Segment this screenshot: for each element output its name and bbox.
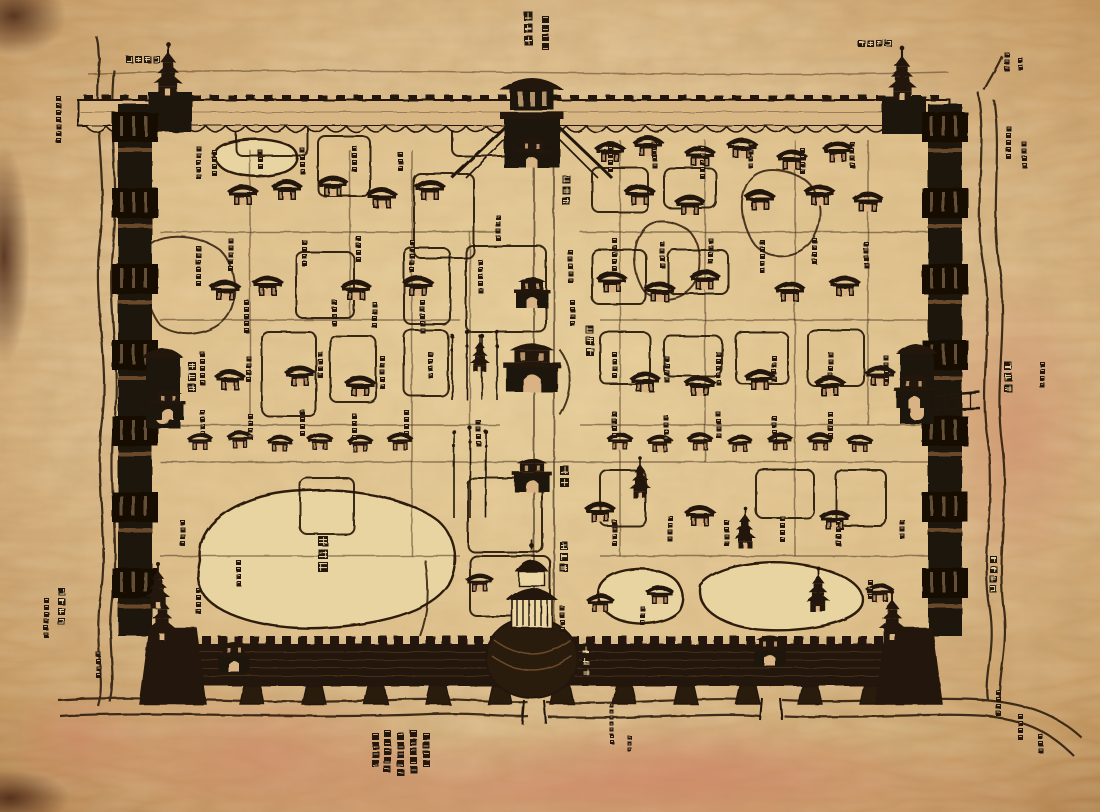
- illegible-glyph: [608, 153, 613, 158]
- illegible-glyph: [812, 245, 817, 250]
- illegible-glyph: [404, 417, 409, 422]
- illegible-glyph: [716, 380, 721, 385]
- illegible-glyph: [884, 356, 889, 361]
- illegible-glyph: [300, 410, 305, 415]
- illegible-glyph: [612, 433, 617, 438]
- north-gate-label: [524, 12, 533, 45]
- illegible-glyph: [1022, 149, 1027, 154]
- illegible-glyph: [372, 742, 379, 749]
- central-hill-label: [586, 326, 594, 356]
- illegible-glyph: [760, 268, 765, 273]
- illegible-glyph: [608, 167, 613, 172]
- illegible-glyph: [864, 249, 869, 254]
- illegible-glyph: [496, 215, 501, 220]
- illegible-glyph: [248, 428, 253, 433]
- illegible-glyph: [996, 711, 1001, 716]
- illegible-glyph: [884, 370, 889, 375]
- illegible-glyph: [56, 117, 61, 122]
- illegible-glyph: [700, 160, 705, 165]
- illegible-glyph: [332, 300, 337, 305]
- illegible-glyph: [996, 690, 1001, 695]
- illegible-glyph: [772, 363, 777, 368]
- illegible-glyph: [716, 419, 721, 424]
- illegible-glyph: [380, 370, 385, 375]
- west-lake-label: [318, 536, 328, 572]
- illegible-glyph: [608, 160, 613, 165]
- illegible-glyph: [760, 247, 765, 252]
- illegible-glyph: [568, 264, 573, 269]
- illegible-glyph: [664, 377, 669, 382]
- illegible-glyph: [660, 256, 665, 261]
- illegible-glyph: [476, 427, 481, 432]
- illegible-glyph: [724, 534, 729, 539]
- illegible-glyph: [760, 240, 765, 245]
- illegible-glyph: [772, 416, 777, 421]
- illegible-glyph: [258, 157, 263, 162]
- illegible-glyph: [612, 412, 617, 417]
- illegible-glyph: [244, 321, 249, 326]
- illegible-glyph: [812, 259, 817, 264]
- illegible-glyph: [478, 260, 483, 265]
- illegible-glyph: [302, 261, 307, 266]
- illegible-glyph: [302, 247, 307, 252]
- illegible-glyph: [200, 352, 205, 357]
- illegible-glyph: [664, 423, 669, 428]
- illegible-glyph: [748, 163, 753, 168]
- illegible-glyph: [258, 164, 263, 169]
- illegible-glyph: [612, 534, 617, 539]
- illegible-glyph: [228, 252, 233, 257]
- illegible-glyph: [180, 527, 185, 532]
- illegible-glyph: [828, 359, 833, 364]
- illegible-glyph: [660, 263, 665, 268]
- illegible-glyph: [332, 307, 337, 312]
- illegible-glyph: [356, 243, 361, 248]
- illegible-glyph: [496, 229, 501, 234]
- illegible-glyph: [372, 323, 377, 328]
- illegible-glyph: [1040, 362, 1045, 367]
- illegible-glyph: [640, 620, 645, 625]
- illegible-glyph: [244, 314, 249, 319]
- illegible-glyph: [248, 414, 253, 419]
- illegible-glyph: [196, 274, 201, 279]
- illegible-glyph: [44, 612, 49, 617]
- illegible-glyph: [772, 437, 777, 442]
- illegible-glyph: [318, 373, 323, 378]
- illegible-glyph: [812, 238, 817, 243]
- illegible-glyph: [668, 530, 673, 535]
- illegible-glyph: [716, 412, 721, 417]
- illegible-glyph: [828, 352, 833, 357]
- illegible-glyph: [748, 142, 753, 147]
- illegible-glyph: [356, 236, 361, 241]
- illegible-glyph: [868, 580, 873, 585]
- illegible-glyph: [1018, 58, 1023, 63]
- illegible-glyph: [748, 156, 753, 161]
- south-axis-gate-label: [560, 542, 568, 572]
- illegible-glyph: [772, 430, 777, 435]
- illegible-glyph: [612, 359, 617, 364]
- illegible-glyph: [56, 124, 61, 129]
- illegible-glyph: [612, 352, 617, 357]
- illegible-glyph: [352, 146, 357, 151]
- illegible-glyph: [196, 609, 201, 614]
- illegible-glyph: [612, 252, 617, 257]
- illegible-glyph: [384, 748, 391, 755]
- illegible-glyph: [716, 366, 721, 371]
- illegible-glyph: [300, 417, 305, 422]
- illegible-glyph: [56, 131, 61, 136]
- illegible-glyph: [200, 424, 205, 429]
- illegible-glyph: [1040, 383, 1045, 388]
- illegible-glyph: [652, 156, 657, 161]
- illegible-glyph: [724, 541, 729, 546]
- illegible-glyph: [200, 431, 205, 436]
- illegible-glyph: [760, 254, 765, 259]
- illegible-glyph: [180, 541, 185, 546]
- illegible-glyph: [200, 359, 205, 364]
- illegible-glyph: [1006, 140, 1011, 145]
- illegible-glyph: [1004, 59, 1009, 64]
- illegible-glyph: [828, 412, 833, 417]
- illegible-glyph: [612, 259, 617, 264]
- illegible-glyph: [864, 256, 869, 261]
- illegible-glyph: [180, 534, 185, 539]
- illegible-glyph: [864, 242, 869, 247]
- illegible-glyph: [1004, 52, 1009, 57]
- illegible-glyph: [668, 537, 673, 542]
- illegible-glyph: [236, 574, 241, 579]
- illegible-glyph: [560, 613, 565, 618]
- illegible-glyph: [410, 261, 415, 266]
- illegible-glyph: [318, 359, 323, 364]
- illegible-glyph: [302, 240, 307, 245]
- illegible-glyph: [708, 245, 713, 250]
- illegible-glyph: [404, 424, 409, 429]
- illegible-glyph: [780, 516, 785, 521]
- illegible-glyph: [244, 307, 249, 312]
- illegible-glyph: [196, 153, 201, 158]
- illegible-glyph: [200, 373, 205, 378]
- illegible-glyph: [397, 742, 404, 749]
- illegible-glyph: [300, 148, 305, 153]
- illegible-glyph: [800, 169, 805, 174]
- illegible-glyph: [423, 742, 430, 749]
- illegible-glyph: [664, 437, 669, 442]
- illegible-glyph: [772, 370, 777, 375]
- illegible-glyph: [96, 666, 101, 671]
- illegible-glyph: [668, 516, 673, 521]
- illegible-glyph: [236, 560, 241, 565]
- illegible-glyph: [398, 166, 403, 171]
- illegible-glyph: [300, 162, 305, 167]
- illegible-glyph: [652, 149, 657, 154]
- illegible-glyph: [850, 149, 855, 154]
- illegible-glyph: [200, 380, 205, 385]
- illegible-glyph: [612, 238, 617, 243]
- illegible-glyph: [716, 433, 721, 438]
- illegible-glyph: [1006, 133, 1011, 138]
- illegible-glyph: [332, 321, 337, 326]
- illegible-glyph: [244, 300, 249, 305]
- illegible-glyph: [212, 157, 217, 162]
- illegible-glyph: [196, 267, 201, 272]
- illegible-glyph: [542, 25, 549, 32]
- illegible-glyph: [836, 534, 841, 539]
- illegible-glyph: [372, 751, 379, 758]
- illegible-glyph: [570, 314, 575, 319]
- illegible-glyph: [372, 316, 377, 321]
- illegible-glyph: [850, 163, 855, 168]
- illegible-glyph: [716, 359, 721, 364]
- illegible-glyph: [200, 417, 205, 422]
- illegible-glyph: [612, 419, 617, 424]
- illegible-glyph: [772, 423, 777, 428]
- illegible-glyph: [300, 424, 305, 429]
- illegible-glyph: [248, 421, 253, 426]
- illegible-glyph: [384, 739, 391, 746]
- illegible-glyph: [200, 410, 205, 415]
- illegible-glyph: [560, 620, 565, 625]
- illegible-glyph: [248, 435, 253, 440]
- illegible-glyph: [568, 271, 573, 276]
- illegible-glyph: [560, 606, 565, 611]
- illegible-glyph: [476, 420, 481, 425]
- illegible-glyph: [200, 366, 205, 371]
- illegible-glyph: [196, 246, 201, 251]
- illegible-glyph: [398, 152, 403, 157]
- illegible-glyph: [196, 595, 201, 600]
- illegible-glyph: [496, 236, 501, 241]
- illegible-glyph: [478, 288, 483, 293]
- illegible-glyph: [568, 250, 573, 255]
- illegible-glyph: [196, 174, 201, 179]
- illegible-glyph: [420, 321, 425, 326]
- illegible-glyph: [196, 281, 201, 286]
- illegible-glyph: [420, 328, 425, 333]
- illegible-glyph: [56, 96, 61, 101]
- illegible-glyph: [56, 138, 61, 143]
- map-canvas: [0, 0, 1100, 812]
- illegible-glyph: [352, 167, 357, 172]
- illegible-glyph: [1004, 66, 1009, 71]
- illegible-glyph: [780, 523, 785, 528]
- illegible-glyph: [356, 250, 361, 255]
- illegible-glyph: [496, 222, 501, 227]
- illegible-glyph: [570, 307, 575, 312]
- illegible-glyph: [640, 613, 645, 618]
- illegible-glyph: [828, 366, 833, 371]
- illegible-glyph: [372, 309, 377, 314]
- illegible-glyph: [1040, 369, 1045, 374]
- illegible-glyph: [196, 167, 201, 172]
- illegible-glyph: [850, 156, 855, 161]
- illegible-glyph: [410, 739, 417, 746]
- illegible-glyph: [812, 252, 817, 257]
- illegible-glyph: [380, 363, 385, 368]
- illegible-glyph: [56, 103, 61, 108]
- illegible-glyph: [44, 619, 49, 624]
- illegible-glyph: [748, 149, 753, 154]
- illegible-glyph: [428, 352, 433, 357]
- illegible-glyph: [800, 148, 805, 153]
- illegible-glyph: [1040, 376, 1045, 381]
- illegible-glyph: [44, 633, 49, 638]
- illegible-glyph: [664, 416, 669, 421]
- illegible-glyph: [664, 430, 669, 435]
- illegible-glyph: [900, 534, 905, 539]
- illegible-glyph: [664, 356, 669, 361]
- illegible-glyph: [476, 441, 481, 446]
- illegible-glyph: [228, 245, 233, 250]
- illegible-glyph: [660, 242, 665, 247]
- illegible-glyph: [612, 266, 617, 271]
- illegible-glyph: [410, 240, 415, 245]
- illegible-glyph: [1018, 728, 1023, 733]
- illegible-glyph: [570, 300, 575, 305]
- illegible-glyph: [1018, 714, 1023, 719]
- illegible-glyph: [836, 527, 841, 532]
- illegible-glyph: [246, 356, 251, 361]
- illegible-glyph: [56, 110, 61, 115]
- illegible-glyph: [428, 373, 433, 378]
- illegible-glyph: [850, 142, 855, 147]
- east-gate-label: [1004, 362, 1012, 392]
- illegible-glyph: [780, 530, 785, 535]
- illegible-glyph: [352, 428, 357, 433]
- illegible-glyph: [1006, 147, 1011, 152]
- illegible-glyph: [96, 652, 101, 657]
- illegible-glyph: [246, 370, 251, 375]
- illegible-glyph: [828, 419, 833, 424]
- illegible-glyph: [380, 377, 385, 382]
- illegible-glyph: [212, 171, 217, 176]
- illegible-glyph: [996, 697, 1001, 702]
- illegible-glyph: [372, 302, 377, 307]
- illegible-glyph: [300, 155, 305, 160]
- illegible-glyph: [332, 314, 337, 319]
- illegible-glyph: [868, 587, 873, 592]
- illegible-glyph: [700, 146, 705, 151]
- illegible-glyph: [1006, 154, 1011, 159]
- illegible-glyph: [612, 373, 617, 378]
- illegible-glyph: [800, 162, 805, 167]
- illegible-glyph: [44, 605, 49, 610]
- illegible-glyph: [352, 421, 357, 426]
- illegible-glyph: [423, 751, 430, 758]
- illegible-glyph: [900, 520, 905, 525]
- illegible-glyph: [380, 356, 385, 361]
- illegible-glyph: [664, 370, 669, 375]
- inner-north-gate-label: [562, 175, 570, 205]
- illegible-glyph: [196, 146, 201, 151]
- illegible-glyph: [196, 160, 201, 165]
- illegible-glyph: [708, 259, 713, 264]
- illegible-glyph: [228, 266, 233, 271]
- illegible-glyph: [246, 363, 251, 368]
- illegible-glyph: [652, 142, 657, 147]
- illegible-glyph: [884, 363, 889, 368]
- illegible-glyph: [246, 377, 251, 382]
- illegible-glyph: [568, 278, 573, 283]
- illegible-glyph: [404, 410, 409, 415]
- illegible-glyph: [420, 314, 425, 319]
- illegible-glyph: [478, 281, 483, 286]
- illegible-glyph: [570, 321, 575, 326]
- south-gate-label: [582, 646, 590, 676]
- illegible-glyph: [318, 366, 323, 371]
- illegible-glyph: [228, 259, 233, 264]
- illegible-glyph: [708, 238, 713, 243]
- illegible-glyph: [560, 627, 565, 632]
- illegible-glyph: [410, 247, 415, 252]
- illegible-glyph: [760, 261, 765, 266]
- illegible-glyph: [1018, 735, 1023, 740]
- illegible-glyph: [196, 260, 201, 265]
- illegible-glyph: [404, 431, 409, 436]
- illegible-glyph: [478, 267, 483, 272]
- illegible-glyph: [780, 537, 785, 542]
- illegible-glyph: [1018, 65, 1023, 70]
- illegible-glyph: [612, 245, 617, 250]
- illegible-glyph: [352, 435, 357, 440]
- illegible-glyph: [236, 581, 241, 586]
- illegible-glyph: [398, 159, 403, 164]
- illegible-glyph: [352, 160, 357, 165]
- illegible-glyph: [228, 238, 233, 243]
- illegible-glyph: [608, 146, 613, 151]
- illegible-glyph: [212, 150, 217, 155]
- illegible-glyph: [724, 520, 729, 525]
- illegible-glyph: [664, 363, 669, 368]
- illegible-glyph: [258, 150, 263, 155]
- illegible-glyph: [700, 153, 705, 158]
- illegible-glyph: [244, 328, 249, 333]
- illegible-glyph: [352, 414, 357, 419]
- illegible-glyph: [397, 751, 404, 758]
- illegible-glyph: [1022, 142, 1027, 147]
- illegible-glyph: [996, 704, 1001, 709]
- illegible-glyph: [542, 34, 549, 41]
- illegible-glyph: [96, 673, 101, 678]
- illegible-glyph: [660, 249, 665, 254]
- illegible-glyph: [716, 426, 721, 431]
- illegible-glyph: [828, 426, 833, 431]
- illegible-glyph: [410, 254, 415, 259]
- illegible-glyph: [864, 263, 869, 268]
- illegible-glyph: [356, 257, 361, 262]
- illegible-glyph: [476, 434, 481, 439]
- illegible-glyph: [612, 366, 617, 371]
- illegible-glyph: [668, 523, 673, 528]
- illegible-glyph: [800, 155, 805, 160]
- illegible-glyph: [884, 377, 889, 382]
- illegible-glyph: [828, 373, 833, 378]
- illegible-glyph: [836, 520, 841, 525]
- illegible-glyph: [568, 257, 573, 262]
- illegible-glyph: [428, 359, 433, 364]
- illegible-glyph: [236, 567, 241, 572]
- illegible-glyph: [1022, 156, 1027, 161]
- illegible-glyph: [410, 268, 415, 273]
- illegible-glyph: [96, 659, 101, 664]
- illegible-glyph: [1038, 748, 1043, 753]
- illegible-glyph: [478, 274, 483, 279]
- illegible-glyph: [652, 163, 657, 168]
- illegible-glyph: [612, 520, 617, 525]
- illegible-glyph: [318, 352, 323, 357]
- illegible-glyph: [196, 602, 201, 607]
